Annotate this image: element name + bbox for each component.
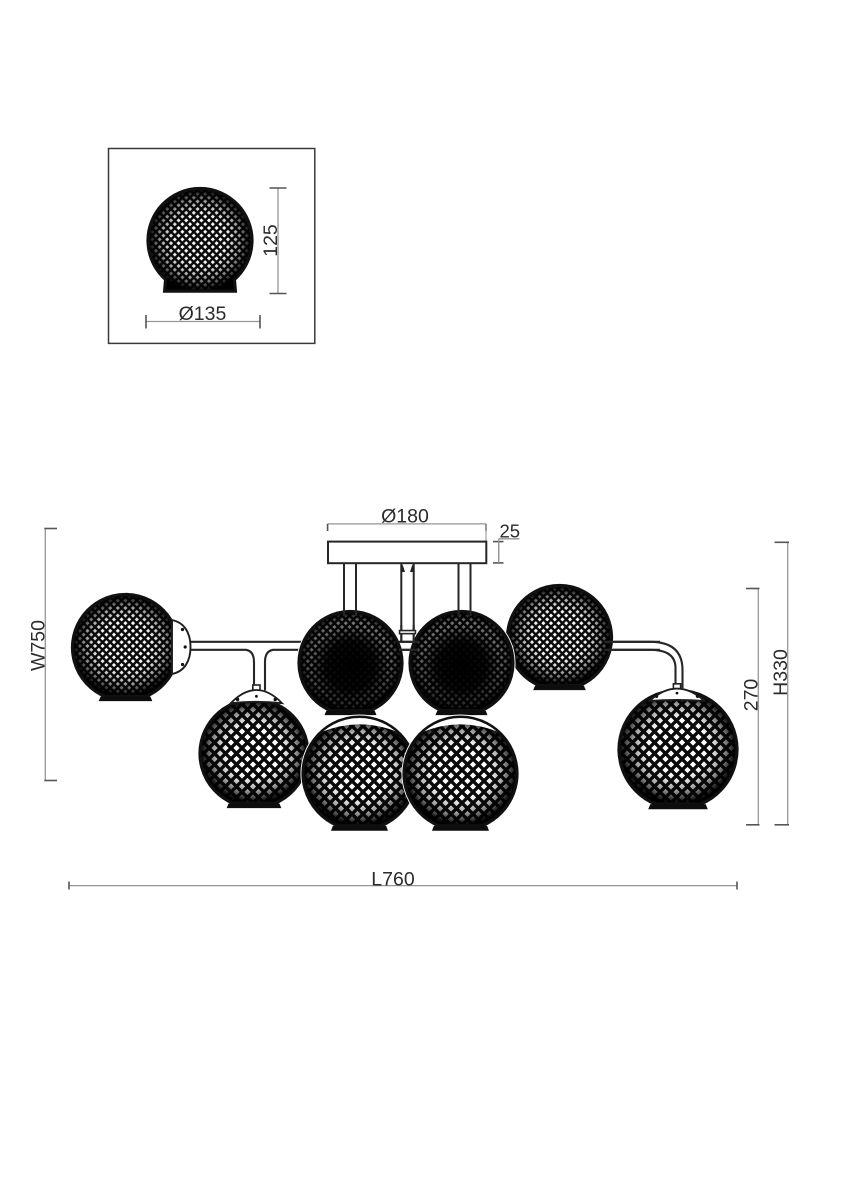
svg-text:125: 125 xyxy=(260,224,282,257)
svg-text:H330: H330 xyxy=(770,649,792,696)
svg-text:W750: W750 xyxy=(27,620,49,671)
svg-text:Ø180: Ø180 xyxy=(381,506,429,528)
svg-text:270: 270 xyxy=(741,679,763,712)
svg-text:L760: L760 xyxy=(371,869,415,891)
svg-text:Ø135: Ø135 xyxy=(179,303,227,325)
svg-text:25: 25 xyxy=(500,520,521,541)
